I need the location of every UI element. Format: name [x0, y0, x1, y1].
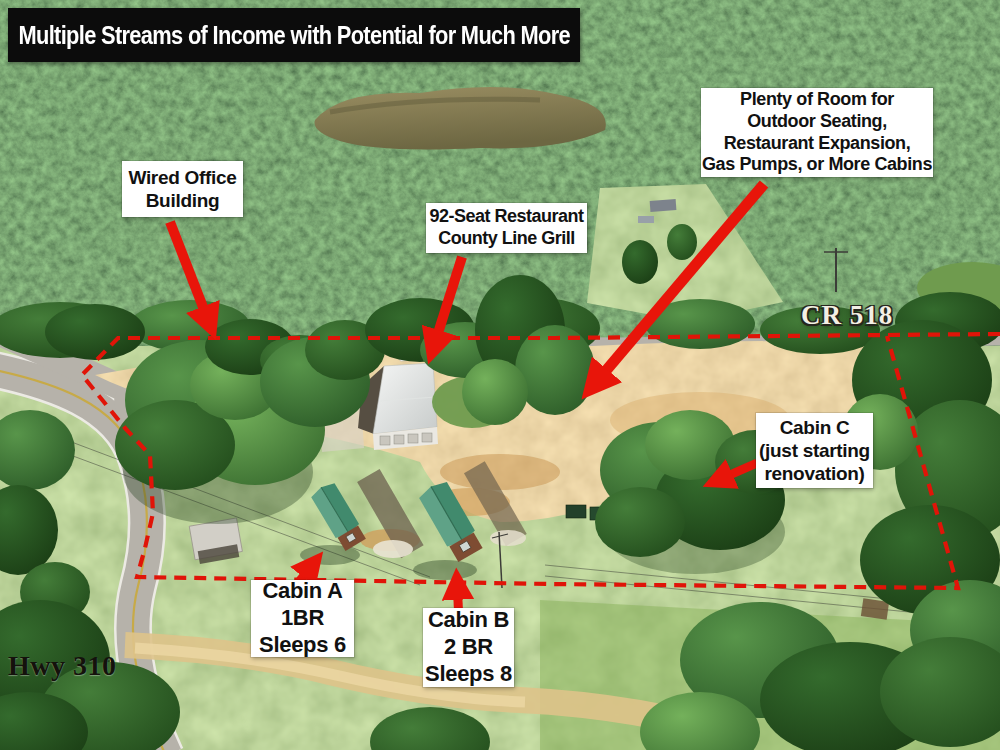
- trailer-small: [638, 216, 654, 223]
- callout-line: Gas Pumps, or More Cabins: [701, 154, 933, 176]
- callout-cabin-c: Cabin C (just starting renovation): [756, 413, 873, 488]
- callout-wired-office: Wired Office Building: [122, 161, 243, 217]
- highway-label: Hwy 310: [8, 650, 117, 682]
- callout-line: Sleeps 8: [423, 661, 514, 688]
- callout-cabin-b: Cabin B 2 BR Sleeps 8: [423, 608, 514, 687]
- title-banner: Multiple Streams of Income with Potentia…: [8, 8, 580, 62]
- callout-line: County Line Grill: [426, 228, 587, 250]
- callout-line: Restaurant Expansion,: [701, 133, 933, 155]
- callout-line: Wired Office: [122, 166, 243, 189]
- county-road-label: CR 518: [801, 300, 893, 331]
- carport: [189, 518, 243, 565]
- callout-line: Plenty of Room for: [701, 89, 933, 111]
- callout-line: Cabin C: [756, 416, 873, 439]
- callout-restaurant: 92-Seat Restaurant County Line Grill: [426, 203, 587, 253]
- callout-line: 1BR: [251, 605, 354, 632]
- callout-line: Outdoor Seating,: [701, 111, 933, 133]
- title-text: Multiple Streams of Income with Potentia…: [18, 20, 570, 51]
- callout-line: Cabin B: [423, 607, 514, 634]
- aerial-photo: Multiple Streams of Income with Potentia…: [0, 0, 1000, 750]
- callout-line: 92-Seat Restaurant: [426, 206, 587, 228]
- callout-line: (just starting: [756, 439, 873, 462]
- callout-expansion: Plenty of Room for Outdoor Seating, Rest…: [701, 88, 933, 177]
- callout-line: Sleeps 6: [251, 632, 354, 659]
- callout-line: Building: [122, 189, 243, 212]
- callout-line: renovation): [756, 462, 873, 485]
- callout-cabin-a: Cabin A 1BR Sleeps 6: [251, 580, 354, 657]
- trailer: [650, 199, 677, 212]
- callout-line: Cabin A: [251, 578, 354, 605]
- callout-line: 2 BR: [423, 634, 514, 661]
